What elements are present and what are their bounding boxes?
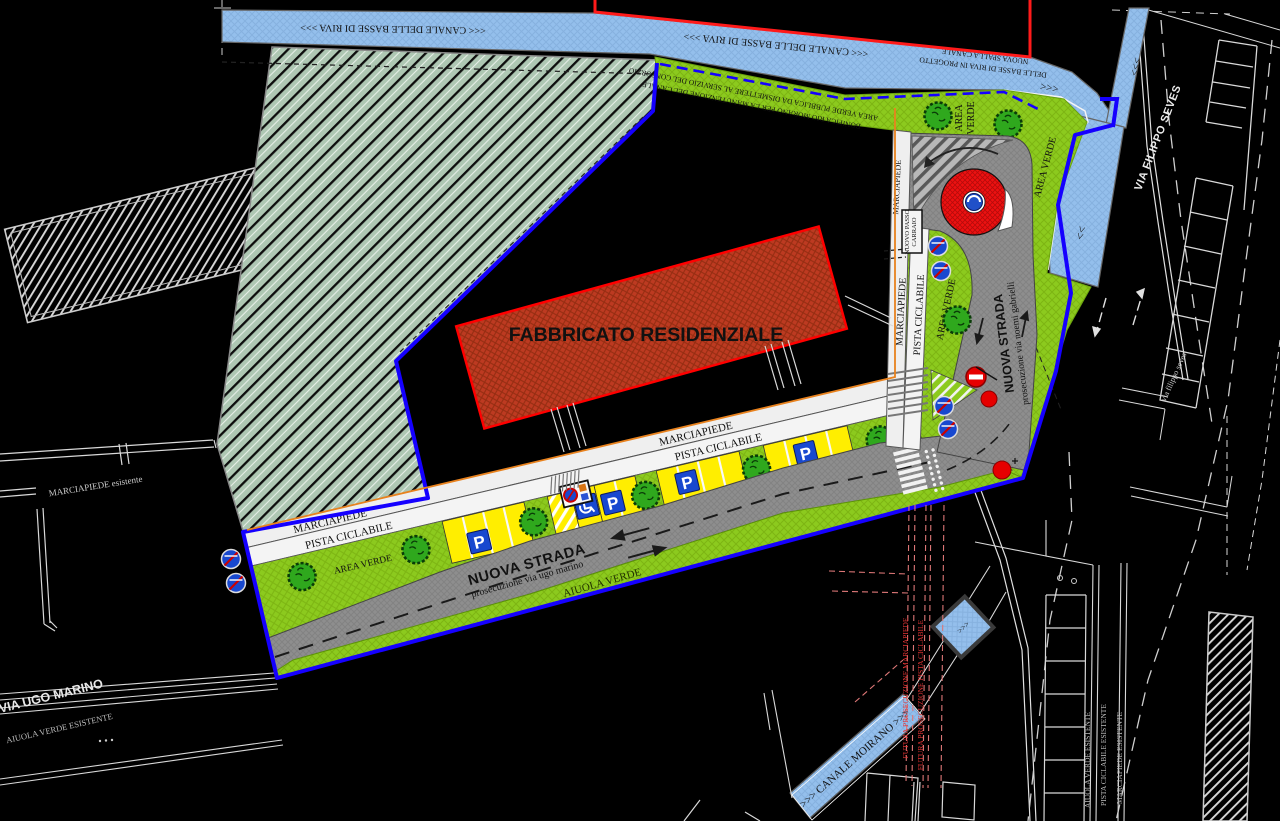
svg-text:AIUOLA VERDE ESISTENTE: AIUOLA VERDE ESISTENTE [1083,712,1092,809]
svg-text:VERDE: VERDE [966,101,977,134]
svg-text:MARCIAPIEDE ESISTENTE: MARCIAPIEDE ESISTENTE [1115,711,1124,804]
svg-text:FABBRICATO RESIDENZIALE: FABBRICATO RESIDENZIALE [509,324,783,346]
svg-text:FUTURA PROSECUZIONE MARCIAPIED: FUTURA PROSECUZIONE MARCIAPIEDE [901,617,910,758]
svg-text:FUTURA PROSECUZIONE PISTA CICL: FUTURA PROSECUZIONE PISTA CICLABILE [916,619,925,770]
svg-text:PISTA CICLABILE ESISTENTE: PISTA CICLABILE ESISTENTE [1099,704,1108,806]
svg-text:CARRAIO: CARRAIO [911,217,918,247]
svg-text:AREA: AREA [954,104,965,132]
svg-text:NUOVO PASSO: NUOVO PASSO [904,209,911,254]
